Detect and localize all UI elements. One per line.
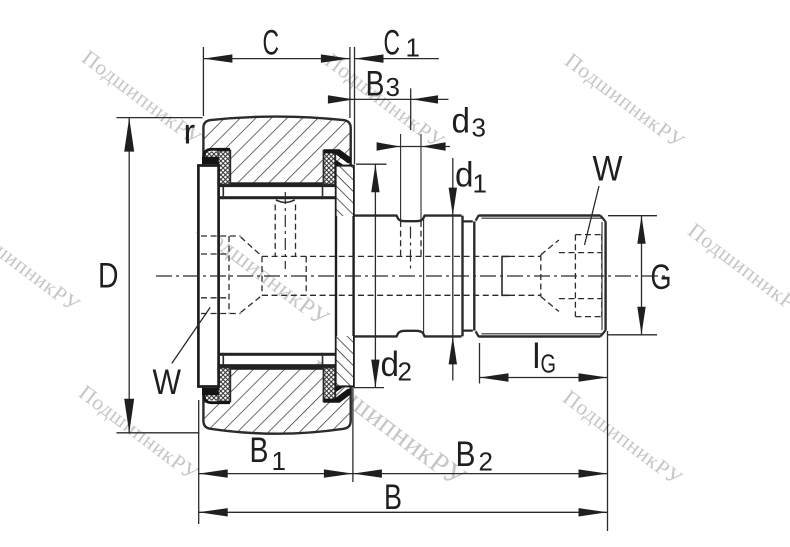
svg-text:B: B xyxy=(366,64,385,103)
svg-text:3: 3 xyxy=(472,113,486,143)
svg-text:2: 2 xyxy=(479,447,493,477)
svg-text:W: W xyxy=(153,363,182,402)
svg-text:ПодшипникРУ: ПодшипникРУ xyxy=(0,212,85,317)
svg-text:C: C xyxy=(384,24,401,63)
svg-text:W: W xyxy=(593,149,623,188)
svg-text:2: 2 xyxy=(398,357,412,387)
svg-text:ПодшипникРУ: ПодшипникРУ xyxy=(560,48,689,153)
svg-text:d: d xyxy=(455,156,474,195)
svg-text:B: B xyxy=(250,431,269,470)
svg-text:B: B xyxy=(384,478,402,517)
svg-text:1: 1 xyxy=(272,446,286,476)
svg-text:G: G xyxy=(541,349,557,379)
svg-text:ПодшипникРУ: ПодшипникРУ xyxy=(683,218,790,323)
svg-text:ПодшипникРУ: ПодшипникРУ xyxy=(558,385,687,490)
svg-text:d: d xyxy=(381,345,400,384)
svg-text:1: 1 xyxy=(473,169,487,199)
svg-text:1: 1 xyxy=(406,33,420,63)
svg-text:D: D xyxy=(98,256,119,295)
svg-text:r: r xyxy=(184,112,196,151)
svg-text:3: 3 xyxy=(386,72,400,102)
svg-text:l: l xyxy=(533,337,541,376)
svg-text:B: B xyxy=(456,435,476,474)
svg-text:C: C xyxy=(263,24,280,63)
svg-text:d: d xyxy=(452,102,471,141)
svg-text:G: G xyxy=(651,258,672,297)
